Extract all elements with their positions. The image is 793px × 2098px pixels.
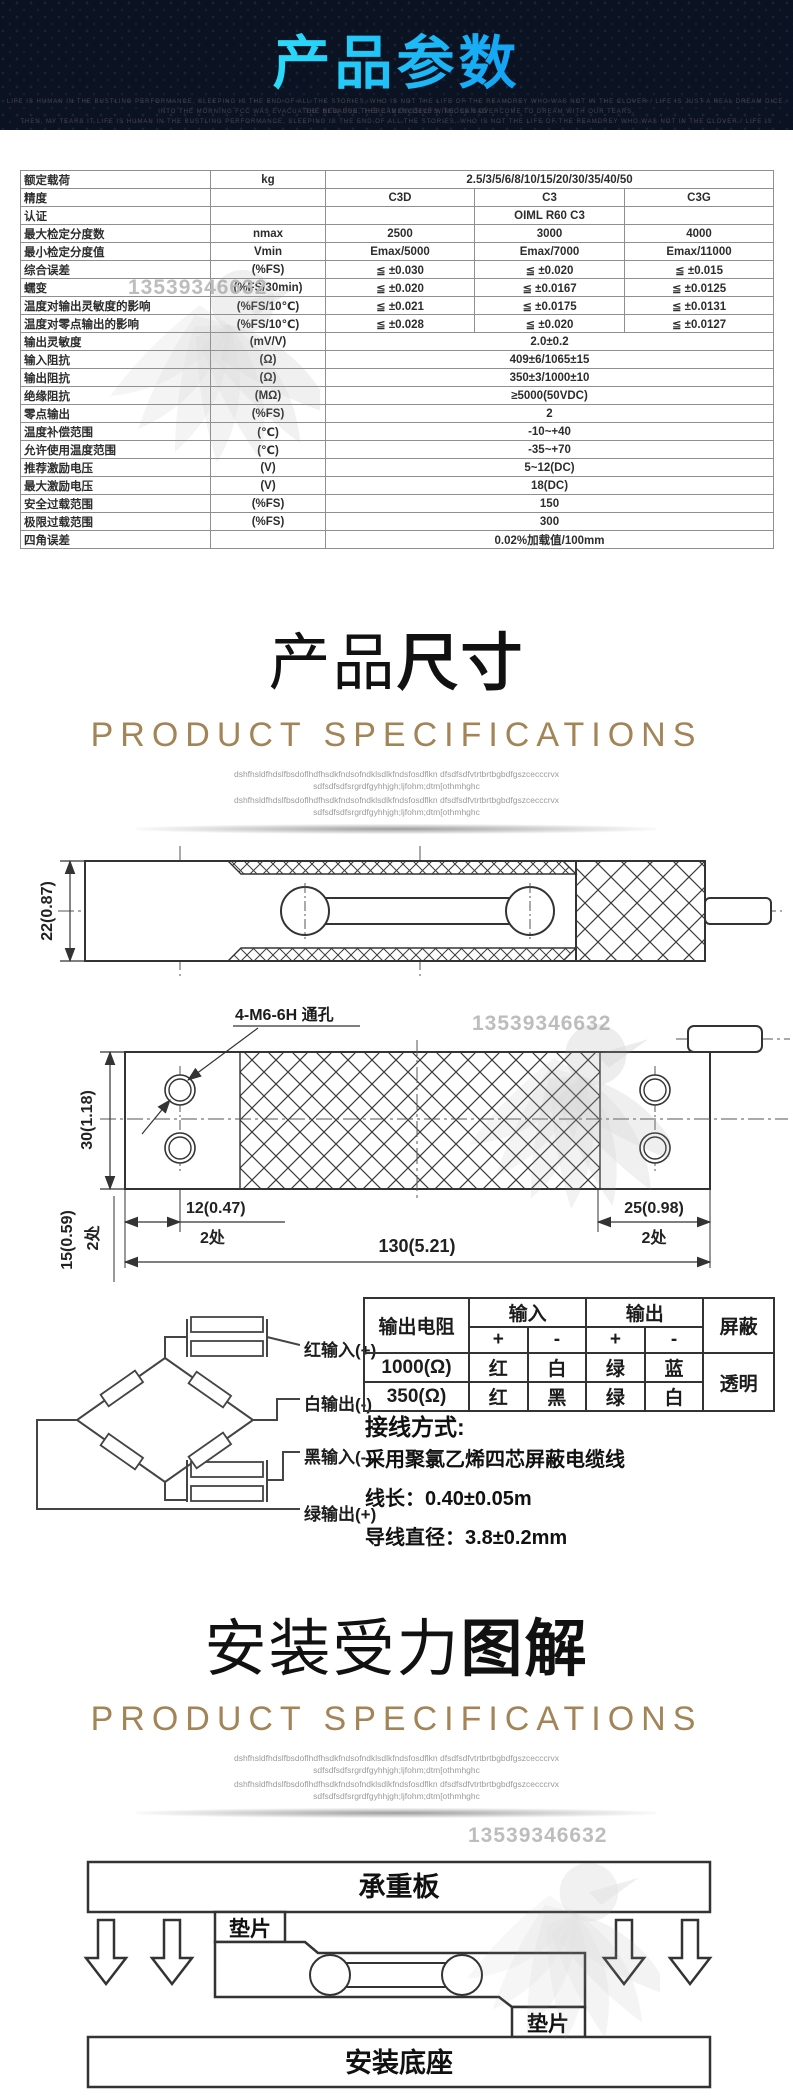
wiring-resistance: 1000(Ω) [364, 1353, 469, 1382]
spec-label: 最大检定分度数 [21, 225, 211, 243]
spec-unit: Vmin [211, 243, 326, 261]
spec-label: 蠕变 [21, 279, 211, 297]
wiring-method-line: 采用聚氯乙烯四芯屏蔽电缆线 [365, 1443, 625, 1472]
polarity-minus: - [645, 1327, 704, 1353]
spec-unit: (%FS/10℃) [211, 315, 326, 333]
dim-side-height: 22(0.87) [39, 881, 56, 941]
dim-edge: 15(0.59) [59, 1210, 76, 1270]
wiring-cell: 黑 [528, 1382, 587, 1411]
spec-label: 综合误差 [21, 261, 211, 279]
spec-value: ≦ ±0.020 [475, 261, 625, 279]
spec-row: 输入阻抗(Ω)409±6/1065±15 [21, 351, 774, 369]
product-detail-page: 产品参数 LIFE IS HUMAN IN THE BUSTLING PERFO… [0, 0, 793, 2098]
spec-unit [211, 207, 326, 225]
dim-right-places: 2处 [642, 1228, 668, 1247]
polarity-minus: - [528, 1327, 587, 1353]
spec-unit: (℃) [211, 441, 326, 459]
hole-callout-label: 4-M6-6H 通孔 [235, 1006, 334, 1024]
install-spacer-left-label: 垫片 [229, 1917, 271, 1941]
section-desc-line: dshfhsldfhdslfbsdoflhdfhsdkfndsofndklsdl… [0, 1778, 793, 1790]
wiring-method-title: 接线方式: [365, 1408, 465, 1442]
spec-value: ≦ ±0.030 [326, 261, 475, 279]
wiring-header-row: 输出电阻 输入 输出 屏蔽 [364, 1298, 774, 1327]
spec-row: 最大检定分度数nmax250030004000 [21, 225, 774, 243]
spec-value: 18(DC) [326, 477, 774, 495]
section-desc-line: sdfsdfsdfsrgrdfgyhhjgh;ljfohm;dtm[othmhg… [0, 1764, 793, 1776]
spec-table: 额定载荷kg2.5/3/5/6/8/10/15/20/30/35/40/50精度… [20, 170, 774, 549]
spec-unit: nmax [211, 225, 326, 243]
hero-subtext-line: THEN, MY TEARS IT LIFE IS HUMAN IN THE B… [0, 117, 793, 127]
wiring-table: 输出电阻 输入 输出 屏蔽 + - + - 1000(Ω) 红 白 绿 蓝 透明… [363, 1297, 775, 1412]
spec-unit: kg [211, 171, 326, 189]
spec-value: 5~12(DC) [326, 459, 774, 477]
section-desc-line: sdfsdfsdfsrgrdfgyhhjgh;ljfohm;dtm[othmhg… [0, 806, 793, 818]
spec-label: 允许使用温度范围 [21, 441, 211, 459]
install-spacer-right-label: 垫片 [527, 2012, 569, 2036]
spec-value: ≦ ±0.0167 [475, 279, 625, 297]
spec-unit: (%FS) [211, 495, 326, 513]
wiring-header-output: 输出 [586, 1298, 703, 1327]
spec-unit: (mV/V) [211, 333, 326, 351]
hero-banner: 产品参数 LIFE IS HUMAN IN THE BUSTLING PERFO… [0, 0, 793, 130]
dim-edge-places: 2处 [83, 1225, 102, 1251]
spec-row: 最小检定分度值VminEmax/5000Emax/7000Emax/11000 [21, 243, 774, 261]
dim-total-length: 130(5.21) [378, 1236, 455, 1256]
spec-value: -35~+70 [326, 441, 774, 459]
spec-row: 温度对零点输出的影响(%FS/10℃)≦ ±0.028≦ ±0.020≦ ±0.… [21, 315, 774, 333]
spec-row: 输出灵敏度(mV/V)2.0±0.2 [21, 333, 774, 351]
spec-row: 四角误差0.02%加载值/100mm [21, 531, 774, 549]
section-title-bold: 尺寸 [397, 629, 525, 698]
spec-value: 2 [326, 405, 774, 423]
section-title-dimensions: 产品尺寸 [0, 612, 793, 702]
spec-value: 350±3/1000±10 [326, 369, 774, 387]
polarity-plus: + [586, 1327, 645, 1353]
installation-diagram: 承重板 垫片 垫片 安装底座 [0, 1850, 793, 2098]
spec-unit: (V) [211, 477, 326, 495]
spec-row: 极限过载范围(%FS)300 [21, 513, 774, 531]
spec-unit: (MΩ) [211, 387, 326, 405]
install-base-label: 安装底座 [345, 2047, 453, 2078]
spec-unit: (Ω) [211, 351, 326, 369]
spec-value: ≦ ±0.0175 [475, 297, 625, 315]
spec-value: ≦ ±0.020 [475, 315, 625, 333]
spec-unit: (V) [211, 459, 326, 477]
spec-value: C3D [326, 189, 475, 207]
dim-top-height: 30(1.18) [79, 1090, 96, 1150]
dim-right-offset: 25(0.98) [624, 1200, 684, 1217]
section-title-bold: 图解 [461, 1615, 589, 1684]
spec-value: ≦ ±0.028 [326, 315, 475, 333]
spec-value: OIML R60 C3 [475, 207, 625, 225]
wiring-header-resistance: 输出电阻 [364, 1298, 469, 1353]
spec-unit: (℃) [211, 423, 326, 441]
spec-row: 推荐激励电压(V)5~12(DC) [21, 459, 774, 477]
spec-value: ≦ ±0.020 [326, 279, 475, 297]
spec-value: C3G [625, 189, 774, 207]
spec-value: 0.02%加载值/100mm [326, 531, 774, 549]
spec-row: 综合误差(%FS)≦ ±0.030≦ ±0.020≦ ±0.015 [21, 261, 774, 279]
spec-label: 零点输出 [21, 405, 211, 423]
spec-label: 四角误差 [21, 531, 211, 549]
spec-value: -10~+40 [326, 423, 774, 441]
spec-value: ≥5000(50VDC) [326, 387, 774, 405]
wiring-cell: 白 [645, 1382, 704, 1411]
spec-value: ≦ ±0.015 [625, 261, 774, 279]
spec-label: 额定载荷 [21, 171, 211, 189]
spec-value: 2.0±0.2 [326, 333, 774, 351]
wiring-cell: 红 [469, 1382, 528, 1411]
spec-unit: (%FS) [211, 261, 326, 279]
spec-unit: (%FS) [211, 405, 326, 423]
spec-label: 输出灵敏度 [21, 333, 211, 351]
dim-left-offset: 12(0.47) [186, 1200, 246, 1217]
spec-row: 最大激励电压(V)18(DC) [21, 477, 774, 495]
wiring-cell: 白 [528, 1353, 587, 1382]
spec-label: 推荐激励电压 [21, 459, 211, 477]
wiring-cell: 绿 [586, 1353, 645, 1382]
drawing-top-view: 4-M6-6H 通孔 30(1.18) 12(0.47) 2处 25(0.98)… [0, 1000, 793, 1300]
spec-label: 最小检定分度值 [21, 243, 211, 261]
hero-subtext-line: INTO THE MORNING FCC WAS EVACUATED. BECA… [0, 107, 793, 117]
spec-value: ≦ ±0.0127 [625, 315, 774, 333]
drawing-side-view: 22(0.87) [0, 838, 793, 1003]
spec-label: 极限过载范围 [21, 513, 211, 531]
section-title-normal: 产品 [268, 629, 396, 698]
spec-label: 温度补偿范围 [21, 423, 211, 441]
section-subtitle-en: PRODUCT SPECIFICATIONS [0, 716, 793, 755]
spec-row: 输出阻抗(Ω)350±3/1000±10 [21, 369, 774, 387]
bridge-circuit-diagram [15, 1310, 300, 1540]
wiring-row-1000: 1000(Ω) 红 白 绿 蓝 透明 [364, 1353, 774, 1382]
spec-label: 认证 [21, 207, 211, 225]
spec-unit: (Ω) [211, 369, 326, 387]
spec-value: 2500 [326, 225, 475, 243]
spec-unit: (%FS/10℃) [211, 297, 326, 315]
section-subtitle-en: PRODUCT SPECIFICATIONS [0, 1700, 793, 1739]
spec-value: ≦ ±0.0125 [625, 279, 774, 297]
spec-value [326, 207, 475, 225]
wiring-method-line: 线长：0.40±0.05m [365, 1482, 532, 1511]
wiring-cell: 蓝 [645, 1353, 704, 1382]
spec-row: 允许使用温度范围(℃)-35~+70 [21, 441, 774, 459]
spec-unit [211, 189, 326, 207]
spec-label: 绝缘阻抗 [21, 387, 211, 405]
wiring-shield-value: 透明 [703, 1353, 774, 1411]
spec-value [625, 207, 774, 225]
spec-row: 额定载荷kg2.5/3/5/6/8/10/15/20/30/35/40/50 [21, 171, 774, 189]
spec-value: 409±6/1065±15 [326, 351, 774, 369]
spec-label: 输入阻抗 [21, 351, 211, 369]
page-title: 产品参数 [0, 16, 793, 100]
section-desc-line: dshfhsldfhdslfbsdoflhdfhsdkfndsofndklsdl… [0, 794, 793, 806]
spec-label: 精度 [21, 189, 211, 207]
wiring-resistance: 350(Ω) [364, 1382, 469, 1411]
dim-left-places: 2处 [200, 1228, 226, 1247]
section-desc-line: dshfhsldfhdslfbsdoflhdfhsdkfndsofndklsdl… [0, 768, 793, 780]
spec-label: 最大激励电压 [21, 477, 211, 495]
wire-label-black-input: 黑输入(-) [304, 1443, 372, 1468]
spec-value: ≦ ±0.021 [326, 297, 475, 315]
spec-value: C3 [475, 189, 625, 207]
spec-row: 绝缘阻抗(MΩ)≥5000(50VDC) [21, 387, 774, 405]
section-desc-line: sdfsdfsdfsrgrdfgyhhjgh;ljfohm;dtm[othmhg… [0, 1790, 793, 1802]
spec-value: Emax/11000 [625, 243, 774, 261]
section-desc-line: sdfsdfsdfsrgrdfgyhhjgh;ljfohm;dtm[othmhg… [0, 780, 793, 792]
spec-value: 4000 [625, 225, 774, 243]
spec-row: 认证OIML R60 C3 [21, 207, 774, 225]
section-desc-line: dshfhsldfhdslfbsdoflhdfhsdkfndsofndklsdl… [0, 1752, 793, 1764]
spec-value: ≦ ±0.0131 [625, 297, 774, 315]
section-divider [136, 1808, 656, 1818]
spec-row: 安全过载范围(%FS)150 [21, 495, 774, 513]
spec-value: 150 [326, 495, 774, 513]
section-title-installation: 安装受力图解 [0, 1598, 793, 1688]
polarity-plus: + [469, 1327, 528, 1353]
wiring-cell: 红 [469, 1353, 528, 1382]
watermark-number: 13539346632 [468, 1824, 607, 1848]
spec-row: 精度C3DC3C3G [21, 189, 774, 207]
spec-label: 温度对零点输出的影响 [21, 315, 211, 333]
spec-unit: (%FS/30min) [211, 279, 326, 297]
spec-label: 温度对输出灵敏度的影响 [21, 297, 211, 315]
section-title-normal: 安装受力 [204, 1615, 460, 1684]
spec-row: 温度补偿范围(℃)-10~+40 [21, 423, 774, 441]
spec-unit [211, 531, 326, 549]
spec-row: 温度对输出灵敏度的影响(%FS/10℃)≦ ±0.021≦ ±0.0175≦ ±… [21, 297, 774, 315]
spec-unit: (%FS) [211, 513, 326, 531]
spec-label: 安全过载范围 [21, 495, 211, 513]
spec-value: Emax/5000 [326, 243, 475, 261]
spec-row: 蠕变(%FS/30min)≦ ±0.020≦ ±0.0167≦ ±0.0125 [21, 279, 774, 297]
spec-value: 3000 [475, 225, 625, 243]
wiring-cell: 绿 [586, 1382, 645, 1411]
wiring-method-line: 导线直径：3.8±0.2mm [365, 1521, 567, 1550]
install-top-plate-label: 承重板 [359, 1872, 440, 1902]
spec-label: 输出阻抗 [21, 369, 211, 387]
wiring-header-input: 输入 [469, 1298, 586, 1327]
spec-value: 300 [326, 513, 774, 531]
spec-value: 2.5/3/5/6/8/10/15/20/30/35/40/50 [326, 171, 774, 189]
spec-table-body: 额定载荷kg2.5/3/5/6/8/10/15/20/30/35/40/50精度… [21, 171, 774, 549]
wire-label-white-output: 白输出(-) [304, 1390, 372, 1415]
wiring-header-shield: 屏蔽 [703, 1298, 774, 1353]
section-divider [136, 824, 656, 834]
spec-value: Emax/7000 [475, 243, 625, 261]
spec-row: 零点输出(%FS)2 [21, 405, 774, 423]
